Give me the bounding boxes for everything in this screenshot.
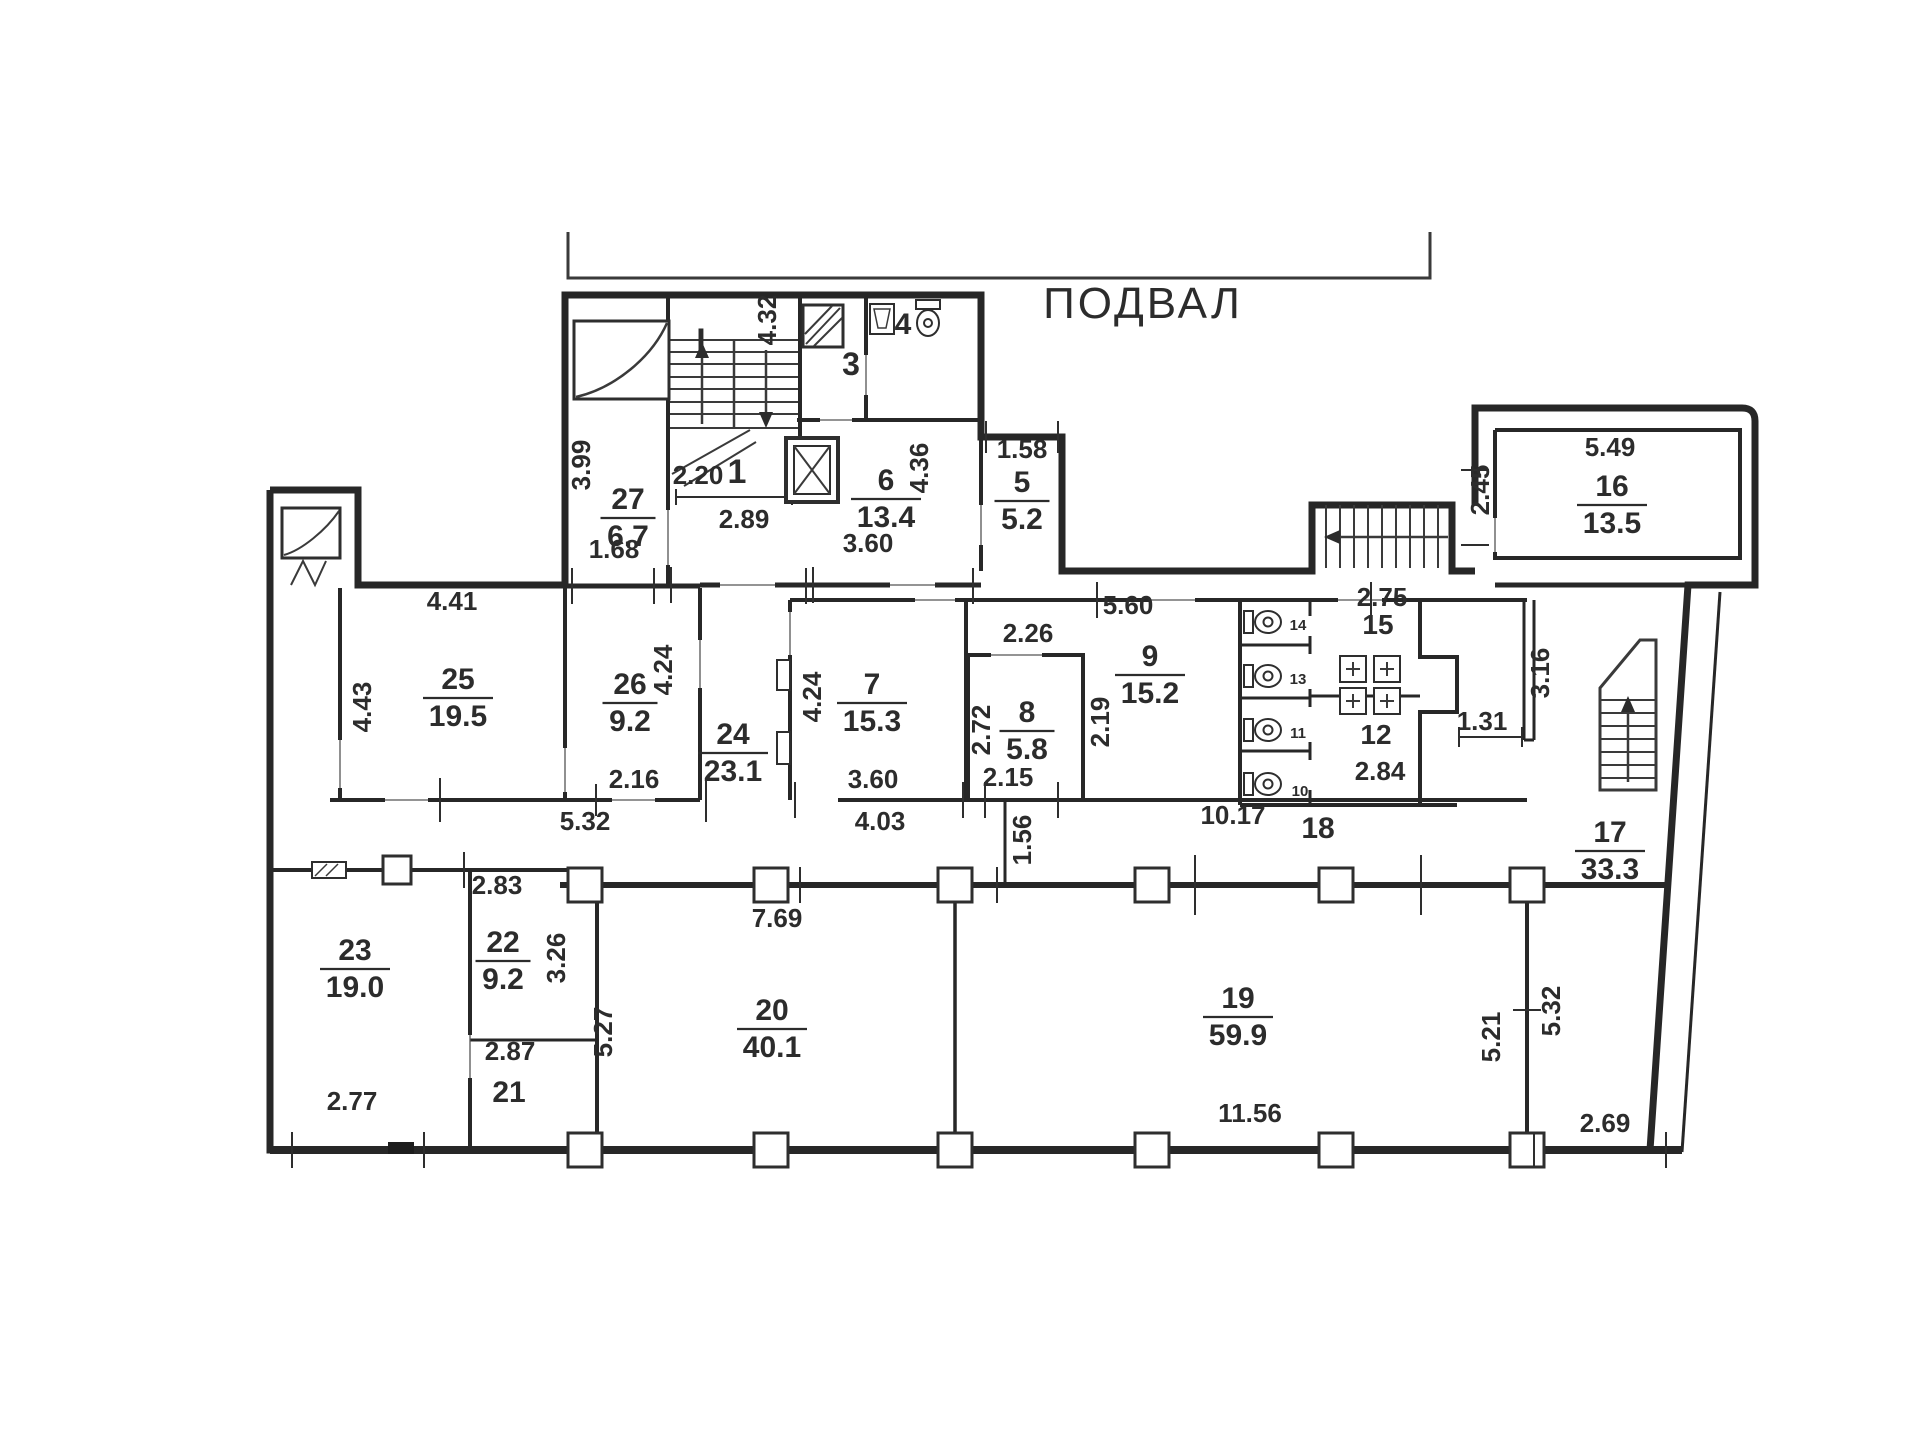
dimension-label: 2.77 <box>327 1086 378 1116</box>
dimension-label: 2.75 <box>1357 582 1408 612</box>
dimension-label: 1.31 <box>1457 706 1508 736</box>
dimension-label: 1.56 <box>1007 815 1037 866</box>
floor-plan-canvas: ПОДВАЛ <box>0 0 1920 1440</box>
dimension-label: 1.68 <box>589 534 640 564</box>
dimension-label: 2.83 <box>472 870 523 900</box>
dimension-label: 2.45 <box>1465 465 1495 516</box>
room-area: 9.2 <box>482 963 524 996</box>
dimension-label: 7.69 <box>752 903 803 933</box>
stall-number: 11 <box>1290 725 1306 742</box>
room-number: 5 <box>1014 466 1031 499</box>
room-number: 4 <box>895 308 912 341</box>
hatch-icon-wall <box>312 862 346 878</box>
upper-outline-bracket <box>568 232 1430 278</box>
stall-number: 13 <box>1290 671 1307 688</box>
dimension-label: 4.41 <box>427 586 478 616</box>
toilet-icon-room4 <box>916 300 940 336</box>
room-area: 23.1 <box>704 755 762 788</box>
stair-down-arrow <box>759 412 773 428</box>
dimension-label: 10.17 <box>1200 800 1265 830</box>
room-area: 13.5 <box>1583 507 1641 540</box>
toilet-icon-stall11 <box>1244 719 1281 741</box>
room-area: 40.1 <box>743 1031 801 1064</box>
room-area: 15.3 <box>843 705 901 738</box>
level-marker: I <box>696 322 705 360</box>
toilet-icon-stall14 <box>1244 611 1281 633</box>
dimension-label: 5.32 <box>560 806 611 836</box>
stall-number: 10 <box>1292 783 1309 800</box>
dimension-label: 2.20 <box>673 460 724 490</box>
dimension-label: 3.26 <box>541 933 571 984</box>
room-area: 9.2 <box>609 705 651 738</box>
room-number: 16 <box>1595 470 1628 503</box>
dimension-label: 5.49 <box>1585 432 1636 462</box>
room-number: 26 <box>613 668 646 701</box>
plan-title: ПОДВАЛ <box>1043 279 1243 328</box>
room-area: 33.3 <box>1581 853 1639 886</box>
dimension-label: 2.72 <box>966 705 996 756</box>
outer-walls <box>270 295 1755 1152</box>
room-number: 21 <box>492 1076 525 1109</box>
dimension-label: 3.60 <box>848 764 899 794</box>
dimension-label: 3.99 <box>566 440 596 491</box>
room-area: 59.9 <box>1209 1019 1267 1052</box>
dimension-label: 4.24 <box>797 671 827 722</box>
dimension-label: 3.16 <box>1525 648 1555 699</box>
room-number: 15 <box>1362 609 1393 640</box>
dimension-label: 5.60 <box>1103 590 1154 620</box>
dimension-label: 2.16 <box>609 764 660 794</box>
dimension-label: 4.24 <box>648 644 678 695</box>
dimension-label: 3.60 <box>843 528 894 558</box>
dimension-label: 4.32 <box>752 295 782 346</box>
washbasin-icons <box>1340 656 1400 714</box>
room-number: 25 <box>441 663 474 696</box>
room-number: 8 <box>1019 696 1036 729</box>
dimension-label: 1.58 <box>997 434 1048 464</box>
room-number: 1 <box>728 453 747 491</box>
room-area: 15.2 <box>1121 677 1179 710</box>
vent-icon-left <box>282 508 340 585</box>
stall-number: 14 <box>1290 617 1307 634</box>
room-area: 19.5 <box>429 700 487 733</box>
dimension-label: 2.84 <box>1355 756 1406 786</box>
room-area: 5.2 <box>1001 503 1043 536</box>
shower-icon <box>803 305 843 347</box>
dimension-label: 5.32 <box>1536 986 1566 1037</box>
right-staircase <box>1600 640 1656 790</box>
dimension-label: 2.89 <box>719 504 770 534</box>
room-number: 7 <box>864 668 881 701</box>
dimension-label: 5.21 <box>1476 1012 1506 1063</box>
dimension-label: 5.27 <box>588 1007 618 1058</box>
room-number: 19 <box>1221 982 1254 1015</box>
interior-walls <box>270 295 1740 1150</box>
room-number: 20 <box>755 994 788 1027</box>
dimension-label: 4.43 <box>347 682 377 733</box>
stair-up-arrow-right <box>1621 696 1635 712</box>
dimension-label: 11.56 <box>1218 1098 1282 1128</box>
dimension-label: 2.87 <box>485 1036 536 1066</box>
columns <box>383 856 1544 1167</box>
room-number: 9 <box>1142 640 1159 673</box>
room-number: 17 <box>1593 816 1626 849</box>
sink-icon-room4 <box>870 304 894 334</box>
dimension-label: 4.03 <box>855 806 906 836</box>
dimension-label: 2.26 <box>1003 618 1054 648</box>
room-number: 27 <box>611 483 644 516</box>
entry-mark <box>388 1142 414 1154</box>
dimension-label: 4.36 <box>904 443 934 494</box>
room-number: 18 <box>1301 812 1334 845</box>
room-area: 19.0 <box>326 971 384 1004</box>
upper-right-staircase <box>1324 505 1448 568</box>
room-number: 12 <box>1360 719 1391 750</box>
vent-icon-stairblock <box>574 321 669 399</box>
room-number: 23 <box>338 934 371 967</box>
toilet-icon-stall13 <box>1244 665 1281 687</box>
dimension-label: 2.15 <box>983 762 1034 792</box>
room-number: 3 <box>842 346 860 382</box>
dimension-label: 2.69 <box>1580 1108 1631 1138</box>
dimension-label: 2.19 <box>1085 697 1115 748</box>
room-number: 6 <box>878 464 895 497</box>
elevator-icon <box>786 438 838 502</box>
room-number: 24 <box>716 718 750 751</box>
room-number: 22 <box>486 926 519 959</box>
toilet-icon-stall10 <box>1244 773 1281 795</box>
floor-plan-page: ПОДВАЛ <box>0 0 1920 1440</box>
